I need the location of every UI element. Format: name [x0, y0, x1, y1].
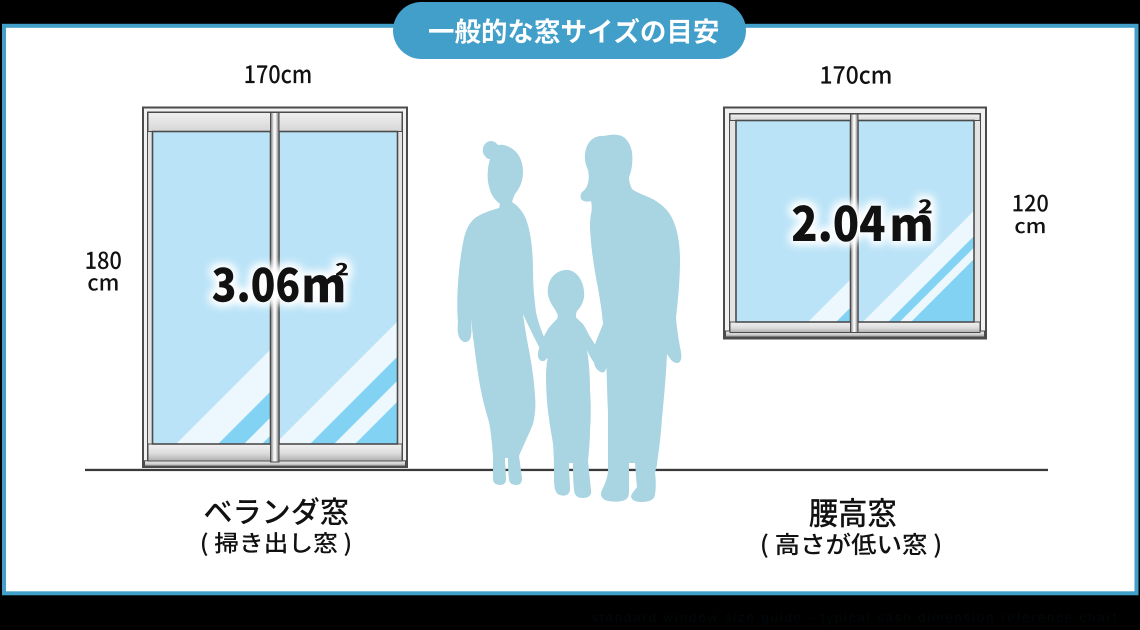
svg-text:standard window size guide - t: standard window size guide - typical sas…: [591, 610, 1118, 625]
